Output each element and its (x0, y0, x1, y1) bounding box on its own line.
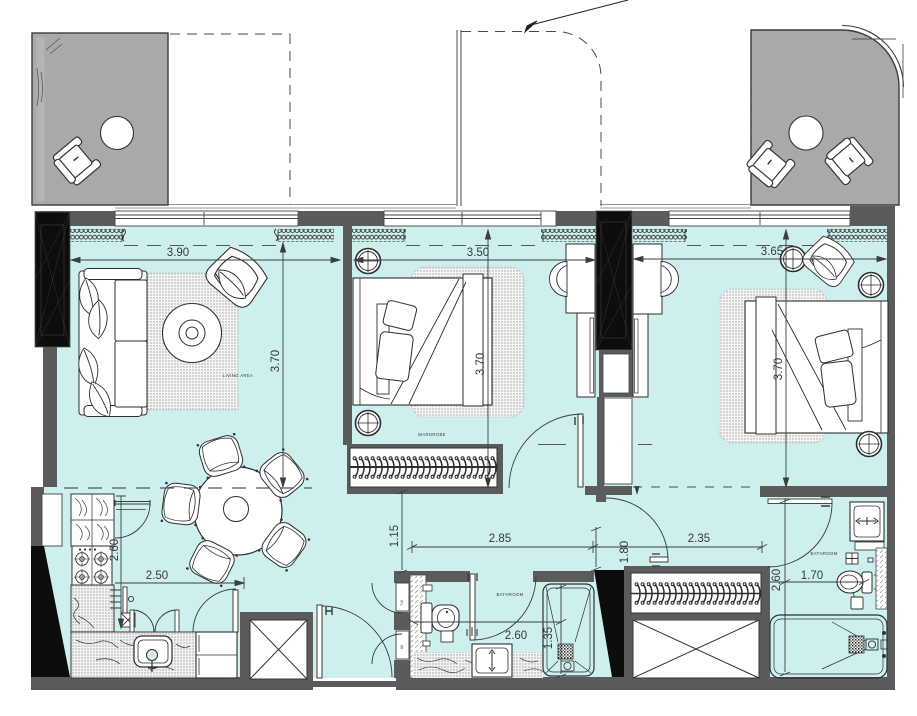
svg-text:LIVING AREA: LIVING AREA (223, 373, 253, 378)
svg-text:2.60: 2.60 (505, 630, 527, 642)
svg-text:3.70: 3.70 (773, 358, 785, 380)
svg-text:3.65: 3.65 (761, 246, 783, 258)
svg-text:80: 80 (400, 645, 404, 649)
svg-text:1.35: 1.35 (543, 627, 555, 649)
svg-text:3.50: 3.50 (467, 247, 489, 259)
svg-text:1.70: 1.70 (801, 570, 823, 582)
svg-text:1.80: 1.80 (619, 541, 631, 563)
svg-text:WARDROBE: WARDROBE (418, 432, 446, 437)
svg-text:BATHROOM: BATHROOM (810, 551, 837, 556)
svg-text:3.70: 3.70 (475, 353, 487, 375)
svg-text:2.35: 2.35 (688, 533, 710, 545)
svg-text:740: 740 (400, 600, 404, 606)
svg-text:1.15: 1.15 (389, 525, 401, 547)
svg-text:3.70: 3.70 (270, 350, 282, 372)
svg-text:2.60: 2.60 (109, 539, 121, 561)
svg-text:2.60: 2.60 (771, 569, 783, 591)
svg-text:3.90: 3.90 (167, 247, 189, 259)
svg-text:2.85: 2.85 (489, 533, 511, 545)
svg-text:2.50: 2.50 (146, 570, 168, 582)
svg-text:BATHROOM: BATHROOM (496, 592, 523, 597)
